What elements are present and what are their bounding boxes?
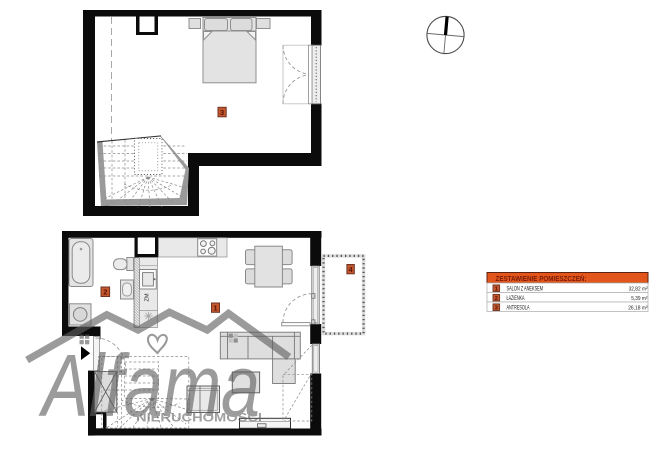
svg-text:ZM: ZM xyxy=(144,293,150,301)
svg-text:32,82 m²: 32,82 m² xyxy=(629,286,648,292)
svg-text:SALON Z ANEKSEM: SALON Z ANEKSEM xyxy=(507,285,544,292)
svg-text:ZESTAWIENIE POMIESZCZEŃ:: ZESTAWIENIE POMIESZCZEŃ: xyxy=(496,274,587,283)
svg-text:5,39 m²: 5,39 m² xyxy=(631,296,647,302)
svg-text:1: 1 xyxy=(213,303,217,312)
svg-text:26,18 m²: 26,18 m² xyxy=(628,305,647,311)
svg-text:2: 2 xyxy=(103,288,107,297)
svg-text:ANTRESOLA: ANTRESOLA xyxy=(507,304,531,311)
svg-text:3: 3 xyxy=(495,305,498,311)
svg-text:ŁAZIENKA: ŁAZIENKA xyxy=(507,295,526,302)
svg-text:NIERUCHOMOŚCI: NIERUCHOMOŚCI xyxy=(136,412,262,425)
svg-text:1: 1 xyxy=(495,286,498,292)
svg-text:4: 4 xyxy=(349,267,353,274)
svg-text:3: 3 xyxy=(220,108,224,117)
svg-text:2: 2 xyxy=(495,296,498,302)
